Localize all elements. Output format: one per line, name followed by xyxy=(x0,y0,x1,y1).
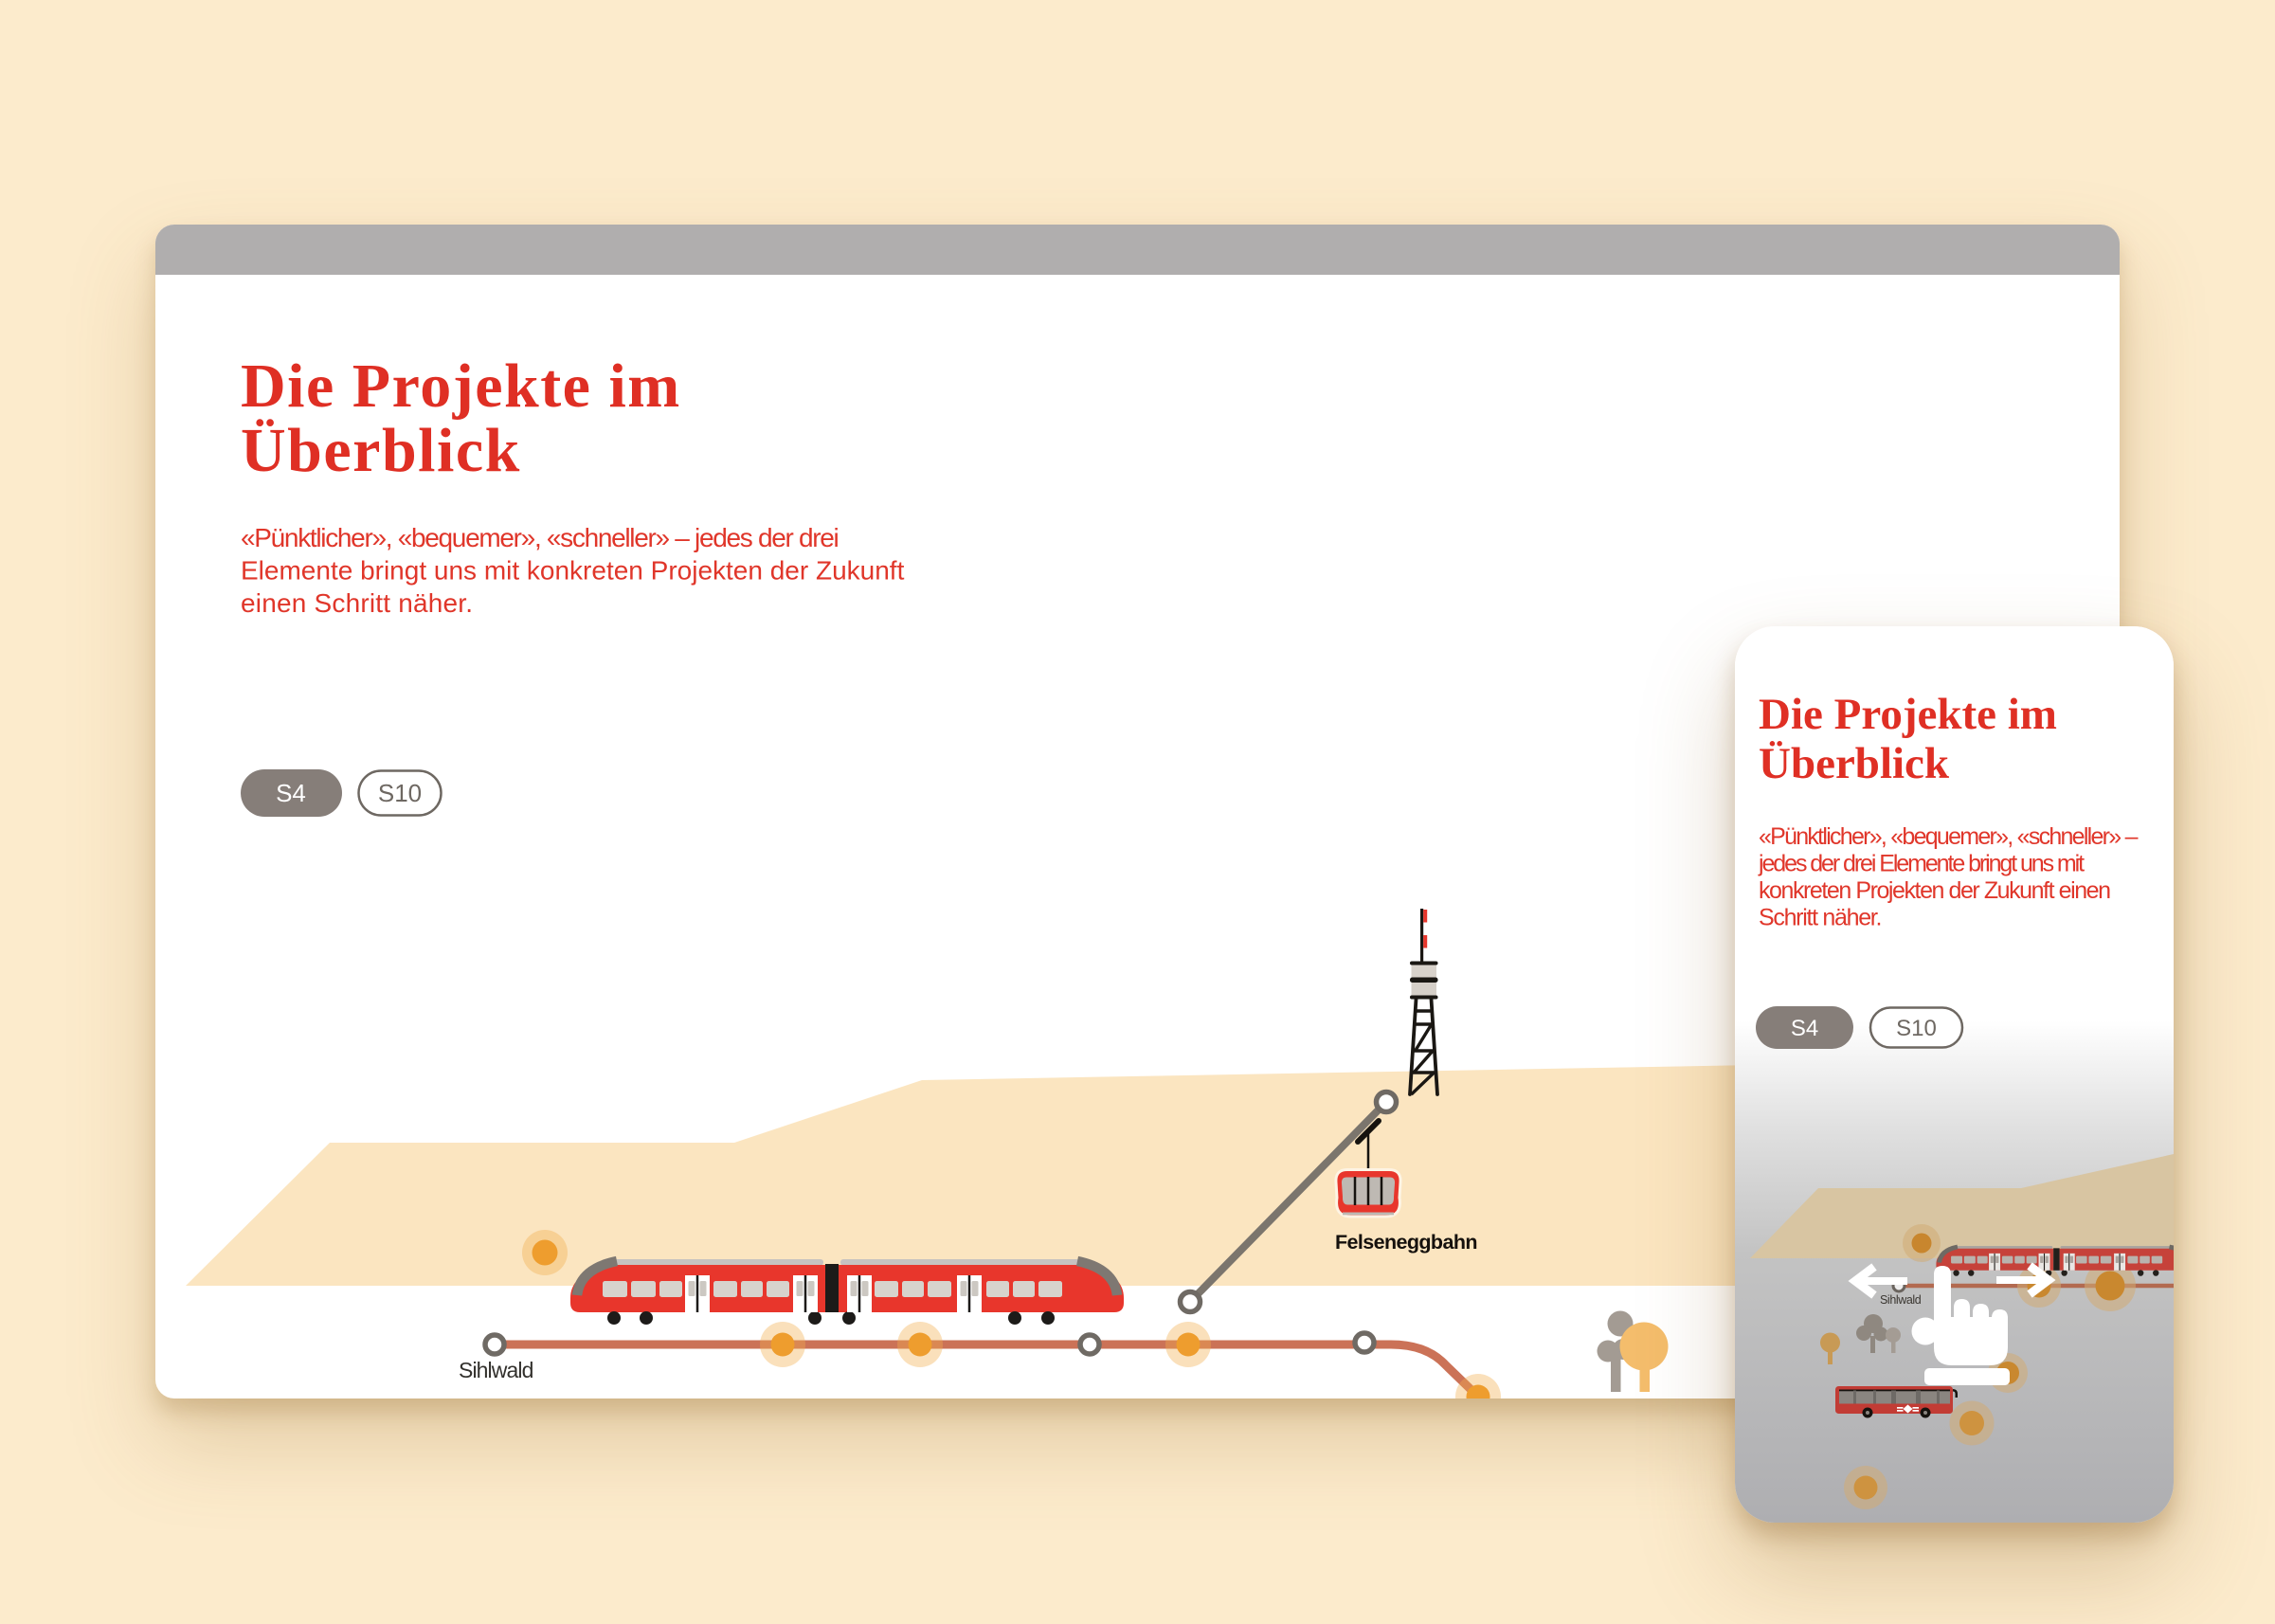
svg-text:Überblick: Überblick xyxy=(241,416,521,485)
svg-text:Die Projekte im: Die Projekte im xyxy=(241,352,681,421)
svg-text:konkreten Projekten der Zukunf: konkreten Projekten der Zukunft einen xyxy=(1759,877,2110,904)
svg-text:S4: S4 xyxy=(1791,1016,1818,1041)
svg-text:Sihlwald: Sihlwald xyxy=(459,1358,533,1382)
svg-text:Die Projekte im: Die Projekte im xyxy=(1759,690,2057,739)
svg-text:Elemente bringt uns mit konkre: Elemente bringt uns mit konkreten Projek… xyxy=(241,556,905,586)
svg-text:«Pünktlicher», «bequemer», «sc: «Pünktlicher», «bequemer», «schneller» – xyxy=(1759,823,2139,850)
svg-text:S4: S4 xyxy=(276,779,306,807)
svg-text:S10: S10 xyxy=(1896,1016,1937,1041)
svg-text:S10: S10 xyxy=(378,779,422,807)
svg-text:einen Schritt näher.: einen Schritt näher. xyxy=(241,588,473,618)
svg-text:Felseneggbahn: Felseneggbahn xyxy=(1335,1231,1477,1254)
svg-text:Sihlwald: Sihlwald xyxy=(1880,1293,1922,1307)
svg-text:«Pünktlicher», «bequemer», «sc: «Pünktlicher», «bequemer», «schneller» –… xyxy=(241,523,839,552)
svg-text:jedes der drei Elemente bringt: jedes der drei Elemente bringt uns mit xyxy=(1758,851,2085,877)
svg-text:Überblick: Überblick xyxy=(1759,739,1950,788)
svg-text:Schritt näher.: Schritt näher. xyxy=(1759,905,1881,931)
